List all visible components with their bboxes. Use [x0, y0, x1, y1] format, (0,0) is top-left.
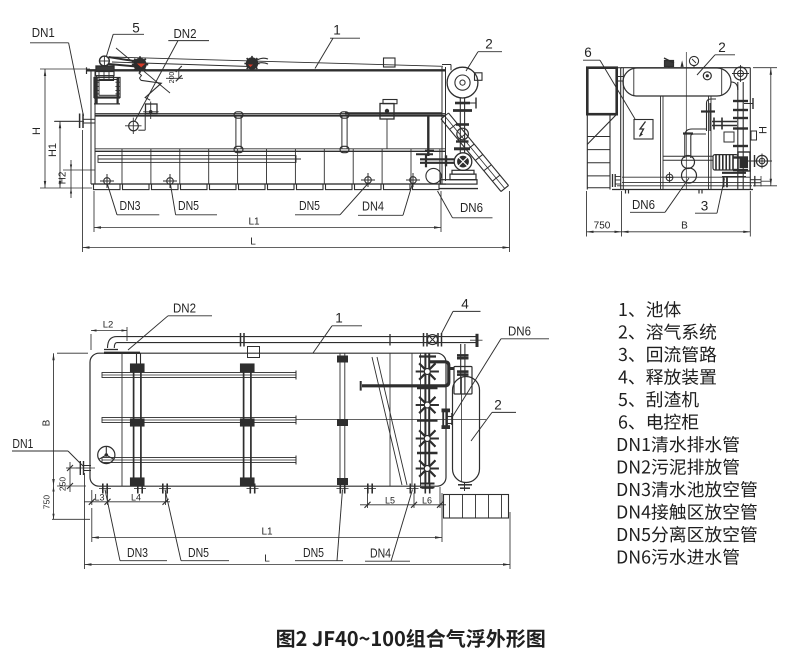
svg-text:2: 2: [494, 398, 502, 413]
svg-text:DN5: DN5: [188, 545, 209, 560]
svg-text:DN4: DN4: [370, 546, 391, 561]
svg-text:B: B: [42, 419, 53, 426]
svg-text:L: L: [250, 237, 256, 248]
svg-text:5: 5: [132, 21, 140, 36]
svg-text:H: H: [31, 127, 43, 135]
svg-text:H1: H1: [47, 143, 59, 157]
svg-text:200: 200: [169, 72, 176, 84]
svg-text:L2: L2: [103, 320, 114, 331]
svg-text:B: B: [681, 220, 688, 231]
svg-text:DN1: DN1: [32, 25, 55, 40]
svg-text:H: H: [758, 126, 770, 134]
svg-text:DN6: DN6: [460, 200, 483, 215]
svg-text:L4: L4: [131, 493, 141, 503]
svg-text:250: 250: [58, 477, 68, 491]
svg-text:L5: L5: [385, 496, 395, 506]
svg-text:DN3: DN3: [120, 198, 141, 213]
svg-text:DN3: DN3: [127, 545, 148, 560]
svg-text:DN6: DN6: [632, 197, 655, 212]
svg-text:2: 2: [485, 37, 493, 52]
svg-text:L1: L1: [248, 217, 260, 228]
svg-text:L6: L6: [422, 496, 432, 506]
svg-text:750: 750: [42, 495, 52, 509]
svg-text:DN2: DN2: [173, 301, 196, 316]
svg-text:DN6: DN6: [508, 324, 531, 339]
svg-text:L3: L3: [94, 493, 104, 503]
svg-text:H2: H2: [58, 171, 69, 184]
svg-text:6: 6: [584, 45, 592, 60]
svg-text:L1: L1: [261, 527, 273, 538]
svg-text:DN5: DN5: [299, 198, 320, 213]
svg-text:4: 4: [461, 297, 469, 312]
svg-text:DN4: DN4: [362, 199, 384, 214]
svg-text:3: 3: [701, 199, 709, 214]
svg-text:DN5: DN5: [303, 545, 324, 560]
svg-text:1: 1: [333, 23, 341, 38]
svg-text:750: 750: [594, 220, 611, 231]
svg-text:DN2: DN2: [174, 26, 197, 41]
svg-text:DN5: DN5: [178, 198, 199, 213]
svg-text:2: 2: [718, 40, 726, 55]
svg-text:L: L: [264, 554, 270, 565]
svg-text:DN1: DN1: [12, 436, 33, 451]
svg-text:1: 1: [335, 311, 343, 326]
